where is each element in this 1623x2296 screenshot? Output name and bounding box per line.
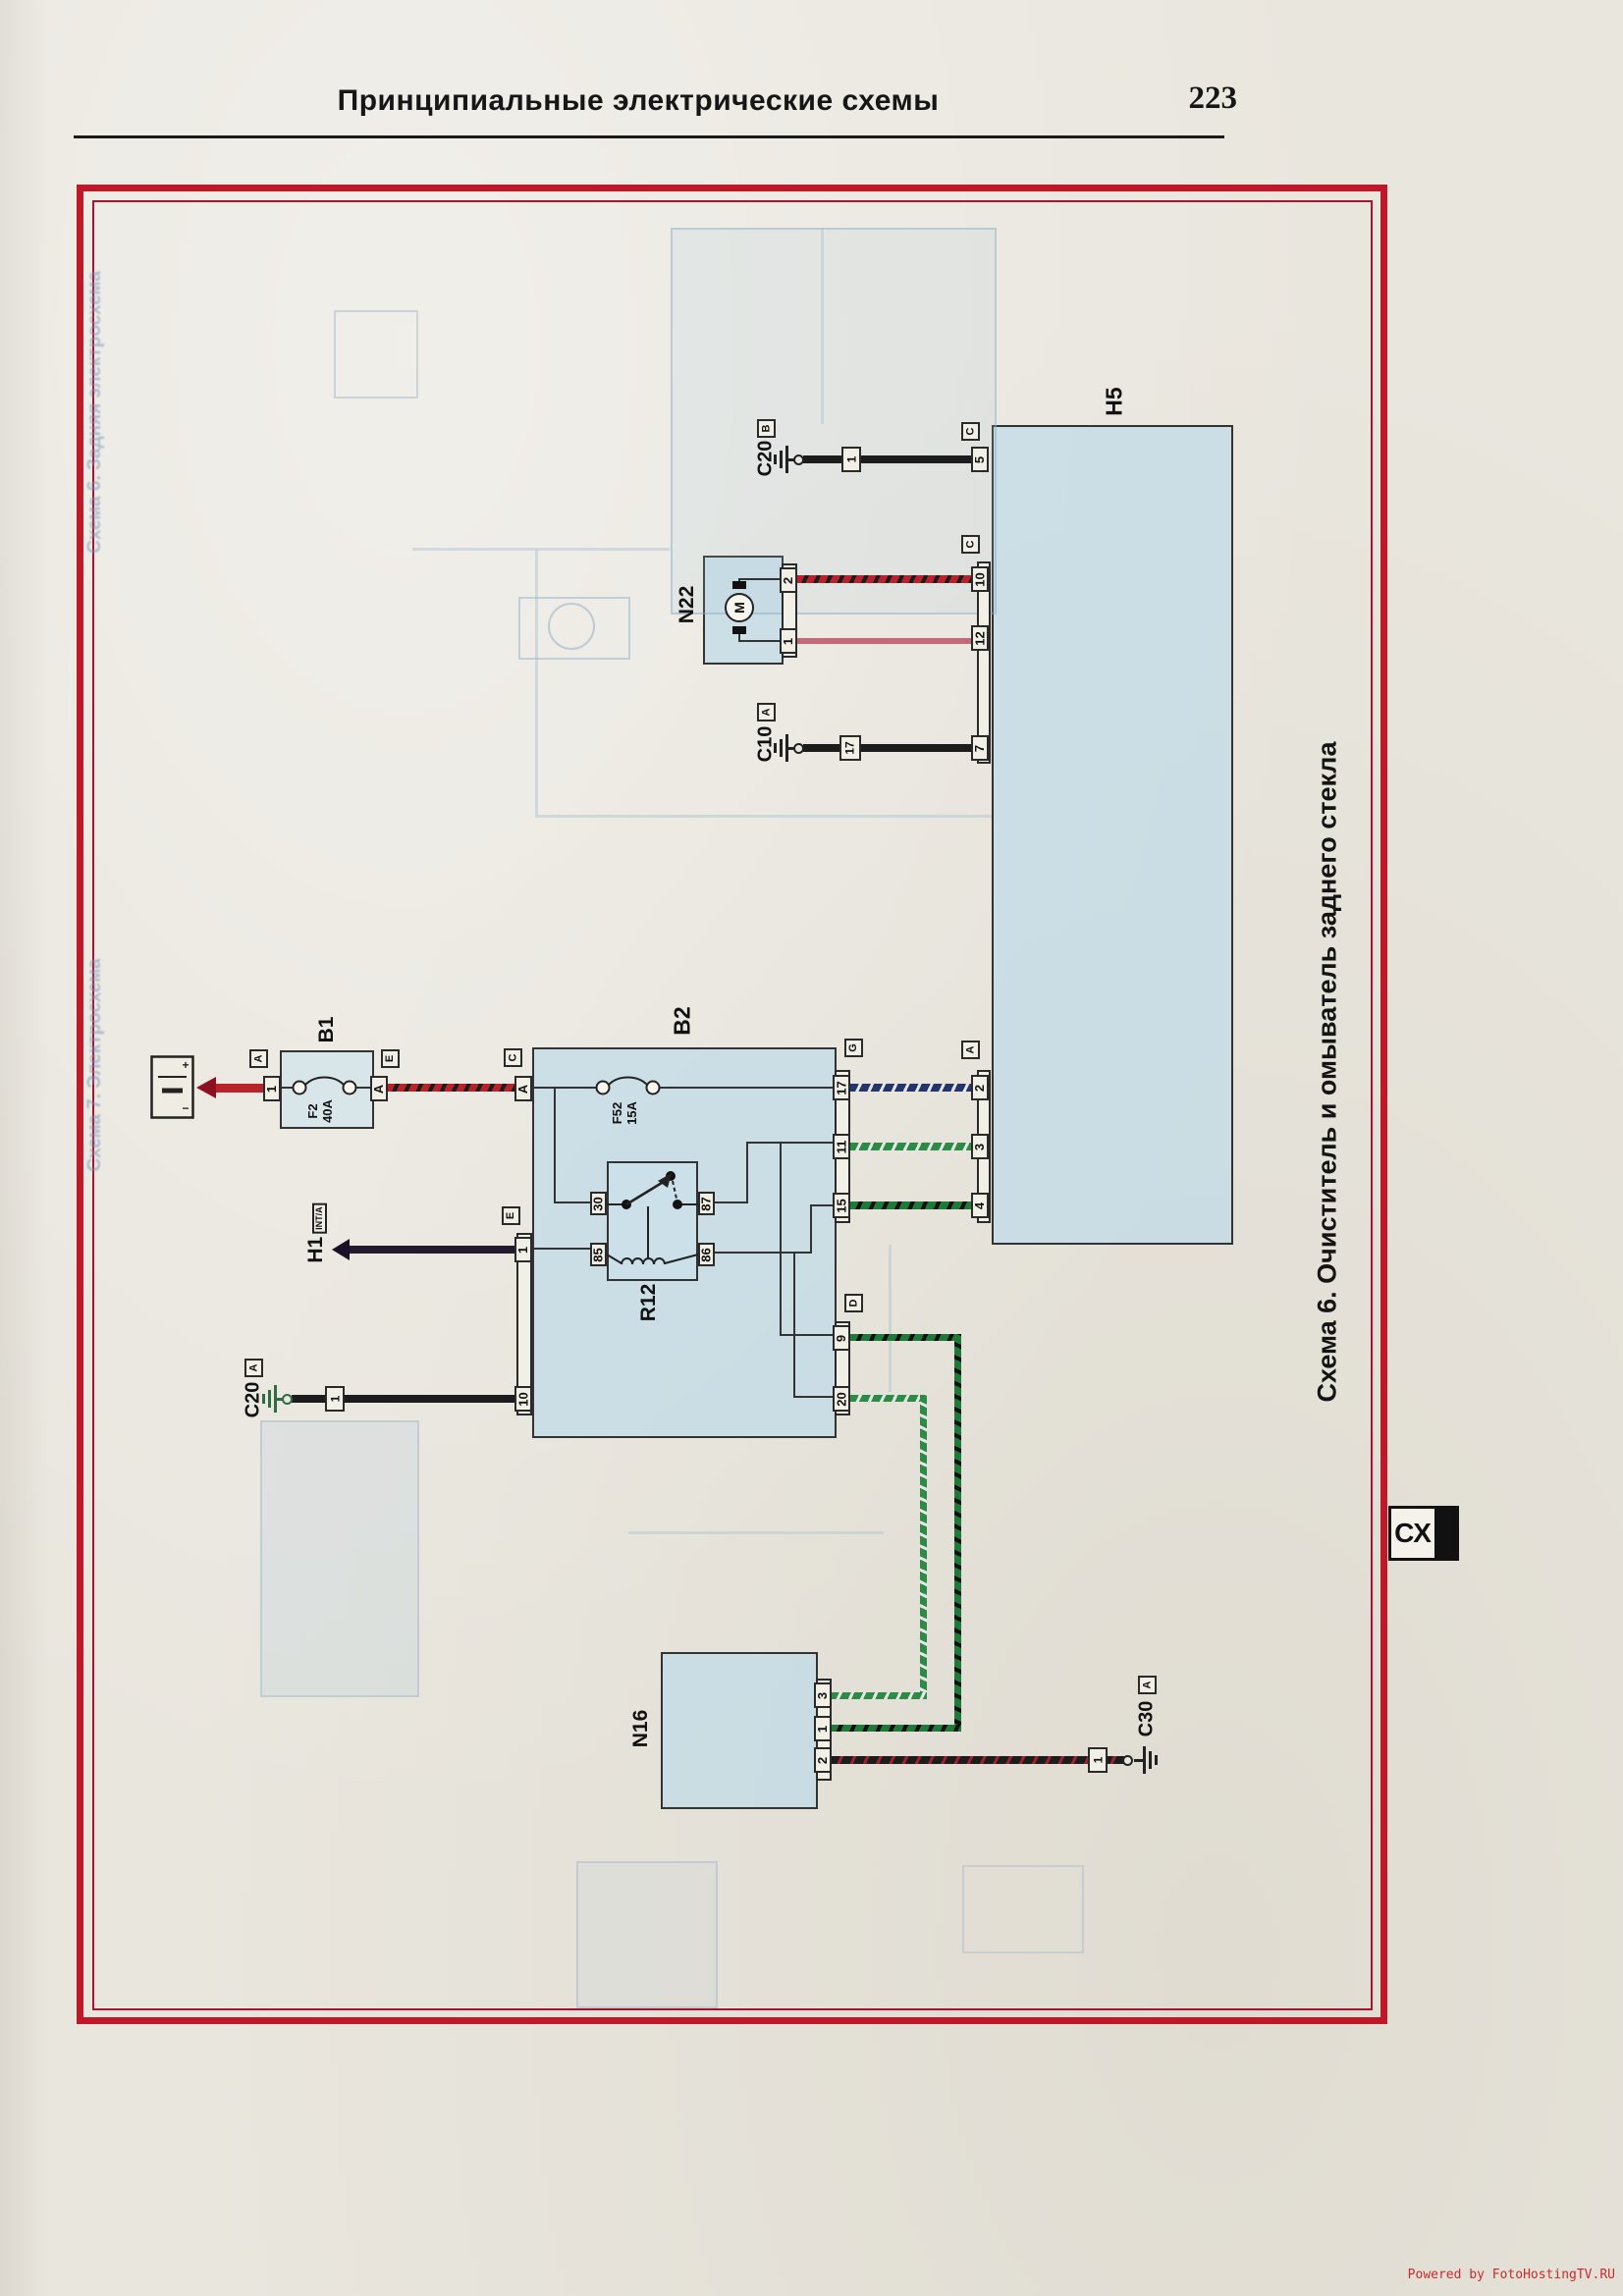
b2-internal-wire	[793, 1254, 795, 1398]
page-title: Принципиальные электрические схемы	[245, 84, 1031, 118]
wire-c10a-h5	[803, 744, 973, 752]
h5-pin-3: 3	[971, 1134, 989, 1159]
wire-pin-c30a: 1	[1088, 1747, 1108, 1773]
b2-internal-wire	[793, 1396, 837, 1398]
fuse-f52-label: F5215A	[611, 1101, 640, 1125]
b2-pin-15: 15	[833, 1193, 850, 1218]
svg-text:−: −	[182, 1101, 189, 1115]
ground-c20a-letterbox: A	[244, 1359, 263, 1377]
schema-caption: Схема 6. Очиститель и омыватель заднего …	[1313, 742, 1343, 1403]
relay-r12-icon	[607, 1161, 698, 1281]
chapter-tab-label: СХ	[1394, 1518, 1432, 1549]
wire-pin-c20b: 1	[841, 447, 861, 472]
wire-b2-20-h	[850, 1395, 927, 1402]
h5-connector-c-mid: C	[961, 535, 980, 554]
wire-b2-11-h5-3	[850, 1143, 973, 1150]
b2-connector-d: D	[844, 1294, 863, 1312]
n22-internal-wire	[738, 578, 782, 580]
motor-n22-icon: M	[719, 581, 762, 636]
chapter-tab-bar	[1437, 1506, 1459, 1561]
b2-connector-e: E	[502, 1206, 520, 1225]
wire-n22-1-h5-12	[797, 638, 973, 644]
h5-pin-7: 7	[971, 735, 989, 761]
ground-c10a-label: C10	[755, 726, 778, 763]
wire-pin-c10a: 17	[839, 735, 861, 761]
b1-pin-1: 1	[263, 1076, 281, 1101]
wire-b2-17-h5-2	[850, 1084, 973, 1092]
ground-c10a-terminal	[793, 743, 804, 754]
component-b1-label: B1	[315, 1017, 339, 1043]
ground-c30a-terminal	[1122, 1755, 1133, 1766]
ground-c30a-letterbox: A	[1138, 1676, 1157, 1694]
b1-connector-a: A	[249, 1049, 268, 1068]
wire-n16-1-h	[831, 1725, 961, 1732]
b2-pin-20: 20	[833, 1386, 850, 1412]
r12-pin-86: 86	[698, 1243, 715, 1266]
ground-c20a-label: C20	[243, 1382, 265, 1418]
wire-c20b-h5	[803, 455, 977, 463]
h1-label: H1INT/A	[304, 1202, 328, 1262]
wire-b2-9-h	[850, 1334, 961, 1341]
h5-pin-5: 5	[971, 447, 989, 472]
wire-n22-2-h5-10	[797, 575, 973, 583]
ground-c10a-letterbox: A	[757, 703, 776, 721]
b2-pin-10: 10	[514, 1386, 532, 1412]
component-n16-box	[661, 1652, 818, 1809]
b2-pin-11: 11	[833, 1134, 850, 1159]
h1-int-a-box: INT/A	[312, 1202, 327, 1234]
b2-pin-17: 17	[833, 1075, 850, 1100]
fuse-f2-label: F240A	[306, 1099, 336, 1123]
b2-internal-wire	[746, 1142, 837, 1144]
h5-pin-12: 12	[971, 625, 989, 651]
h1-arrow	[332, 1239, 350, 1260]
b2-internal-wire	[532, 1087, 597, 1089]
b2-internal-wire	[554, 1087, 556, 1203]
b2-pin-a: A	[514, 1076, 532, 1101]
b2-internal-wire	[658, 1087, 837, 1089]
h5-pin-2: 2	[971, 1075, 989, 1100]
b2-pin-9: 9	[833, 1325, 850, 1351]
r12-pin-85: 85	[590, 1243, 607, 1266]
wire-battery-b1	[214, 1084, 265, 1093]
h5-pin-4: 4	[971, 1193, 989, 1218]
wire-b1-b2	[388, 1084, 515, 1092]
n22-pin-2: 2	[780, 567, 797, 593]
b2-internal-wire	[530, 1248, 591, 1250]
b2-connector-g: G	[844, 1039, 863, 1057]
b2-internal-wire	[810, 1204, 812, 1254]
ground-c20b-terminal	[793, 454, 804, 465]
b1-pin-a: A	[370, 1076, 388, 1101]
battery-arrow	[196, 1077, 216, 1098]
wire-b2-15-h5-4	[850, 1201, 973, 1209]
h5-connector-a: A	[961, 1041, 980, 1059]
h5-connector-c-top: C	[961, 422, 980, 441]
wire-n16-3-h	[831, 1692, 927, 1699]
wire-h1-b2-1	[348, 1246, 516, 1254]
page-number: 223	[1139, 80, 1237, 117]
h5-pin-10: 10	[971, 566, 989, 592]
b1-connector-e: E	[381, 1049, 400, 1068]
component-h5-box	[992, 425, 1233, 1245]
n16-pin-3: 3	[814, 1682, 832, 1708]
wire-b2-20-v	[920, 1395, 927, 1699]
component-r12-label: R12	[637, 1284, 661, 1322]
header-rule	[74, 135, 1224, 138]
n22-internal-wire	[738, 640, 782, 642]
svg-text:+: +	[182, 1058, 189, 1072]
b2-internal-wire	[780, 1144, 782, 1336]
r12-pin-30: 30	[590, 1192, 607, 1215]
b2-internal-wire	[746, 1143, 748, 1203]
scanned-manual-page: Принципиальные электрические схемы 223 С…	[0, 0, 1623, 2296]
wire-pin-c20a: 1	[325, 1386, 345, 1412]
chapter-tab-cx: СХ	[1388, 1506, 1437, 1561]
b2-pin-1: 1	[514, 1237, 532, 1262]
component-b2-label: B2	[670, 1006, 696, 1035]
ground-c20b-letterbox: B	[757, 419, 776, 438]
component-n22-label: N22	[676, 586, 699, 624]
b2-internal-wire	[780, 1334, 837, 1336]
n22-pin-1: 1	[780, 628, 797, 654]
watermark: Powered by FotoHostingTV.RU	[1306, 2268, 1615, 2282]
b2-connector-c: C	[504, 1048, 522, 1067]
component-n16-label: N16	[629, 1710, 653, 1748]
ground-c20a-terminal	[282, 1394, 293, 1405]
battery-icon: + −	[150, 1055, 194, 1119]
svg-text:M: M	[731, 602, 747, 614]
ground-icon-c30a	[1134, 1745, 1160, 1775]
ground-c20b-label: C20	[755, 441, 778, 477]
r12-pin-87: 87	[698, 1192, 715, 1215]
n16-pin-1: 1	[814, 1716, 832, 1741]
wire-n16-2-c30	[831, 1756, 1125, 1764]
wire-b2-9-v	[954, 1334, 961, 1732]
component-h5-label: H5	[1102, 387, 1128, 415]
n16-pin-2: 2	[814, 1747, 832, 1773]
ground-c30a-label: C30	[1136, 1701, 1159, 1737]
fuse-f52-icon	[594, 1074, 665, 1103]
